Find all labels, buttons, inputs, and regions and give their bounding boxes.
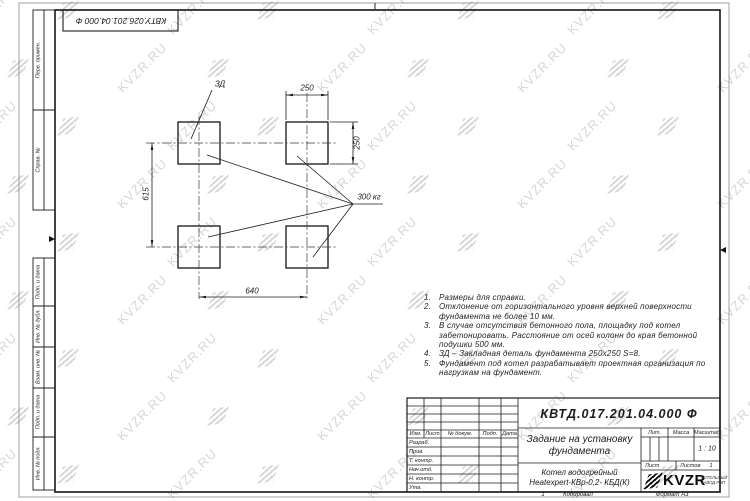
note-number: 4. <box>424 349 439 358</box>
margin-col-inv-dubl: Инв. № дубл. <box>36 309 42 343</box>
sig-n-kontr: Н. контр. <box>409 476 434 482</box>
note-number: 3. <box>424 321 439 349</box>
footer-num: 1 <box>541 492 544 498</box>
zd-leader-label: ЗД <box>215 80 225 89</box>
sig-razrab: Разраб. <box>409 440 429 446</box>
drawing-title-line1: Задание на установку <box>518 434 641 446</box>
note-text: В случае отсутствия бетонного пола, площ… <box>439 321 710 349</box>
note-item-3: 3. В случае отсутствия бетонного пола, п… <box>424 321 710 349</box>
drawing-title: Задание на установку фундамента <box>518 434 641 457</box>
load-leader-label: 300 кг <box>357 193 380 202</box>
dim-col-spacing-label: 640 <box>245 287 258 296</box>
note-item-1: 1. Размеры для справки. <box>424 293 710 302</box>
product-name-line1: Котел водогрейный <box>518 468 641 478</box>
margin-col-sprav-no: Справ. № <box>36 148 42 173</box>
sheets-value: 1 <box>709 463 712 469</box>
col-dokum: № докум. <box>448 431 473 437</box>
dim-pad-width-label: 250 <box>300 84 313 93</box>
col-data: Дата <box>502 431 517 437</box>
sig-t-kontr: Т. контр. <box>409 458 433 464</box>
product-name-line2: Heatexpert-КВр-0,2- КБД(К) <box>518 478 641 488</box>
note-text: ЗД – Закладная деталь фундамента 250х250… <box>439 349 710 358</box>
company-tagline: КОТЕЛЬНЫЙ ЗАВОД РЭП <box>701 475 727 485</box>
foundation-pads <box>178 122 328 268</box>
note-text: Отклонение от горизонтального уровня вер… <box>439 302 710 321</box>
company-tagline-line2: ЗАВОД РЭП <box>701 480 727 485</box>
note-item-2: 2. Отклонение от горизонтального уровня … <box>424 302 710 321</box>
sheet-border <box>19 3 729 497</box>
sheet-label: Лист <box>645 463 659 469</box>
note-text: Размеры для справки. <box>439 293 710 302</box>
dim-pad-height-label: 250 <box>353 136 362 149</box>
sig-nach-otd: Нач.отд. <box>409 467 433 473</box>
kvzr-logo-icon <box>643 473 662 490</box>
note-text: Фундамент под котел разрабатывает проект… <box>439 359 710 378</box>
drawing-designation: КВТД.017.201.04.000 Ф <box>540 407 697 421</box>
note-item-4: 4. ЗД – Закладная деталь фундамента 250х… <box>424 349 710 358</box>
drawing-canvas <box>0 0 750 500</box>
col-podp: Подп. <box>483 431 498 437</box>
kvzr-logo-text: KVZR <box>663 472 706 489</box>
margin-col-inv-podl: Инв. № подл. <box>36 446 42 480</box>
company-cell: KVZR КОТЕЛЬНЫЙ ЗАВОД РЭП <box>643 470 720 492</box>
sig-utv: Утв. <box>409 485 422 491</box>
sig-prov: Пров. <box>409 449 424 455</box>
product-name: Котел водогрейный Heatexpert-КВр-0,2- КБ… <box>518 468 641 487</box>
lit-label: Лит. <box>648 430 661 436</box>
margin-col-podp-data-1: Подп. и дата <box>36 265 42 299</box>
col-izm: Изм. <box>410 431 422 437</box>
note-number: 1. <box>424 293 439 302</box>
top-stamp-designation: КВТУ.026.201.04.000 Ф <box>75 16 166 26</box>
centering-marks <box>49 3 726 253</box>
note-number: 5. <box>424 359 439 378</box>
margin-col-podp-data-2: Подп. и дата <box>36 395 42 429</box>
notes-list: 1. Размеры для справки. 2. Отклонение от… <box>424 293 710 378</box>
margin-col-vzam-inv: Взам. инв. № <box>36 350 42 384</box>
drawing-title-line2: фундамента <box>518 446 641 458</box>
format-label: Формат А3 <box>656 492 689 498</box>
note-item-5: 5. Фундамент под котел разрабатывает про… <box>424 359 710 378</box>
mass-label: Масса <box>673 430 690 436</box>
note-number: 2. <box>424 302 439 321</box>
sheets-label: Листов <box>680 463 700 469</box>
margin-col-perv-primen: Перв. примен. <box>36 42 42 79</box>
col-list: Лист <box>425 431 439 437</box>
sheet-content: КВТУ.026.201.04.000 Ф Перв. примен. Спра… <box>0 0 750 500</box>
scale-value: 1 : 10 <box>698 446 716 453</box>
copied-label: Копировал <box>563 492 593 498</box>
engineering-drawing-sheet: { "sheet": { "top_stamp": "КВТУ.026.201.… <box>0 0 750 500</box>
dim-row-spacing-label: 615 <box>142 187 151 200</box>
scale-label: Масштаб <box>694 430 720 436</box>
